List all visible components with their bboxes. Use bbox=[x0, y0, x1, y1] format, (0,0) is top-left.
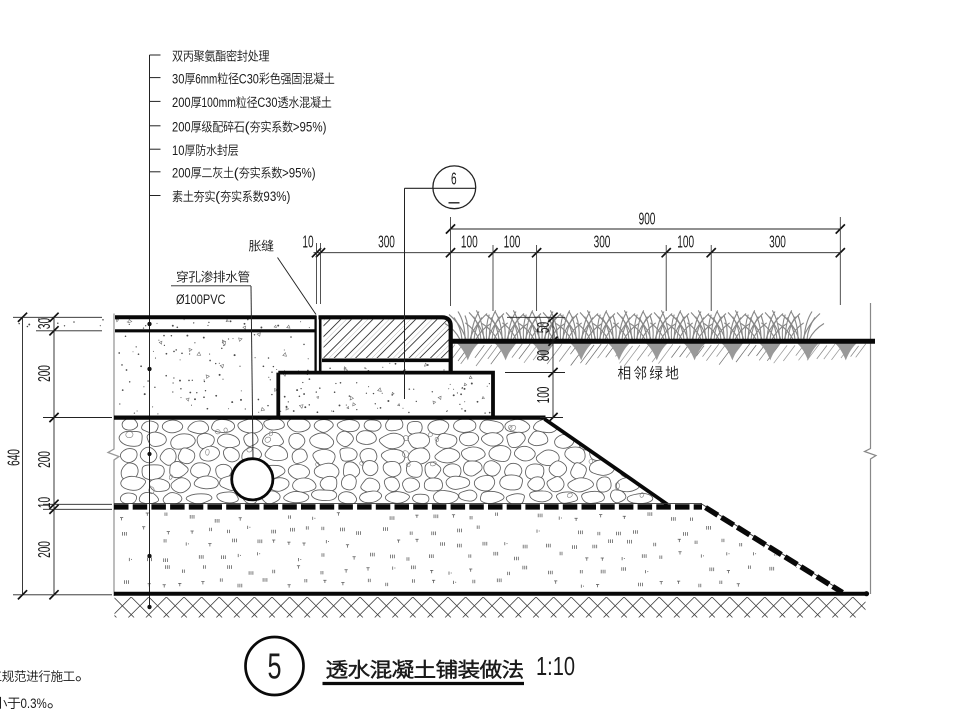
svg-text:640: 640 bbox=[4, 449, 24, 466]
svg-text:100: 100 bbox=[533, 386, 553, 403]
svg-text:(: ( bbox=[215, 189, 220, 205]
svg-text:(: ( bbox=[234, 166, 239, 182]
svg-text:>95%): >95%) bbox=[293, 120, 327, 136]
svg-text:(: ( bbox=[245, 120, 250, 136]
svg-text:C30: C30 bbox=[239, 71, 259, 87]
svg-text:C30: C30 bbox=[257, 95, 277, 111]
svg-text:10: 10 bbox=[172, 143, 184, 159]
svg-text:5: 5 bbox=[268, 646, 282, 687]
svg-text:200: 200 bbox=[172, 166, 191, 182]
svg-text:6: 6 bbox=[451, 169, 457, 189]
svg-text:Ø100PVC: Ø100PVC bbox=[176, 292, 226, 308]
svg-text:300: 300 bbox=[378, 231, 395, 251]
svg-text:300: 300 bbox=[769, 231, 786, 251]
svg-text:300: 300 bbox=[594, 231, 611, 251]
svg-text:30: 30 bbox=[172, 71, 184, 87]
svg-text:80: 80 bbox=[533, 350, 553, 361]
svg-text:200: 200 bbox=[172, 95, 191, 111]
svg-text:1:10: 1:10 bbox=[536, 651, 575, 681]
svg-text:6mm: 6mm bbox=[195, 71, 217, 87]
svg-text:100: 100 bbox=[461, 231, 478, 251]
svg-text:93%): 93%) bbox=[263, 189, 290, 205]
svg-text:200: 200 bbox=[172, 120, 191, 136]
svg-text:200: 200 bbox=[34, 365, 54, 382]
svg-text:100: 100 bbox=[677, 231, 694, 251]
svg-text:100: 100 bbox=[504, 231, 521, 251]
svg-text:200: 200 bbox=[34, 451, 54, 468]
svg-text:>95%): >95%) bbox=[282, 166, 316, 182]
svg-text:50: 50 bbox=[533, 322, 553, 333]
svg-text:10: 10 bbox=[302, 231, 313, 251]
svg-text:200: 200 bbox=[34, 541, 54, 558]
svg-text:100mm: 100mm bbox=[201, 95, 235, 111]
svg-text:0.3%: 0.3% bbox=[21, 696, 48, 710]
svg-text:10: 10 bbox=[34, 497, 54, 508]
svg-text:900: 900 bbox=[639, 209, 656, 229]
svg-text:30: 30 bbox=[34, 318, 54, 329]
